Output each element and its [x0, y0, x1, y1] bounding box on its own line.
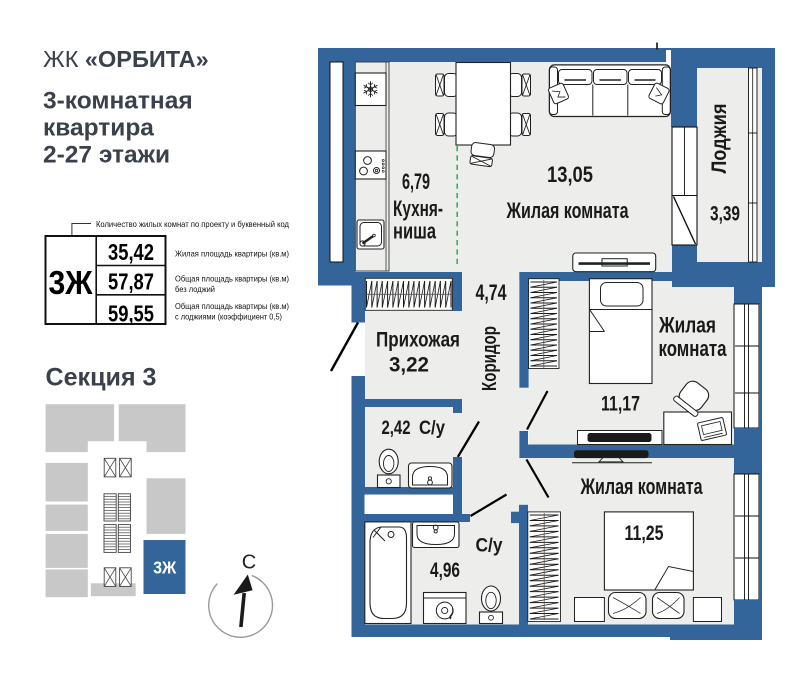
svg-text:квартира: квартира [43, 115, 154, 142]
svg-text:11,25: 11,25 [625, 521, 664, 545]
svg-text:3,22: 3,22 [389, 353, 429, 377]
svg-text:Жилая комната: Жилая комната [580, 474, 703, 499]
svg-text:Коридор: Коридор [479, 326, 501, 391]
svg-text:35,42: 35,42 [108, 239, 154, 265]
svg-text:59,55: 59,55 [108, 301, 154, 327]
svg-text:ЖК «ОРБИТА»: ЖК «ОРБИТА» [43, 46, 209, 72]
svg-text:3-комнатная: 3-комнатная [43, 88, 193, 115]
svg-text:3Ж: 3Ж [49, 264, 93, 301]
svg-text:комната: комната [659, 336, 728, 361]
svg-text:11,17: 11,17 [601, 392, 640, 416]
svg-text:с лоджиями (коэффициент 0,5): с лоджиями (коэффициент 0,5) [175, 312, 282, 322]
svg-text:Жилая комната: Жилая комната [506, 198, 629, 223]
svg-text:Общая площадь квартиры (кв.м): Общая площадь квартиры (кв.м) [175, 301, 289, 311]
svg-text:2-27 этажи: 2-27 этажи [43, 142, 170, 169]
svg-text:3,39: 3,39 [710, 202, 740, 226]
svg-text:4,96: 4,96 [430, 558, 460, 582]
svg-text:без лоджий: без лоджий [175, 284, 215, 294]
svg-text:Жилая: Жилая [658, 313, 716, 338]
svg-text:13,05: 13,05 [547, 162, 593, 187]
svg-text:С/у: С/у [419, 417, 445, 439]
svg-text:Прихожая: Прихожая [376, 328, 460, 352]
svg-text:57,87: 57,87 [108, 269, 154, 295]
svg-text:Жилая площадь квартиры (кв.м): Жилая площадь квартиры (кв.м) [175, 249, 289, 259]
svg-text:6,79: 6,79 [402, 169, 430, 194]
svg-text:Лоджия: Лоджия [708, 104, 731, 174]
svg-text:ниша: ниша [393, 219, 437, 244]
svg-text:Кухня-: Кухня- [393, 196, 443, 221]
svg-text:С/у: С/у [476, 535, 503, 557]
svg-text:2,42: 2,42 [382, 417, 411, 439]
svg-text:С: С [242, 552, 256, 574]
svg-text:Секция 3: Секция 3 [46, 364, 157, 392]
svg-text:Общая площадь квартиры (кв.м): Общая площадь квартиры (кв.м) [175, 274, 289, 284]
svg-text:Количество жилых комнат по про: Количество жилых комнат по проекту и бук… [96, 219, 289, 229]
svg-text:3Ж: 3Ж [153, 558, 176, 578]
svg-text:4,74: 4,74 [476, 280, 508, 305]
